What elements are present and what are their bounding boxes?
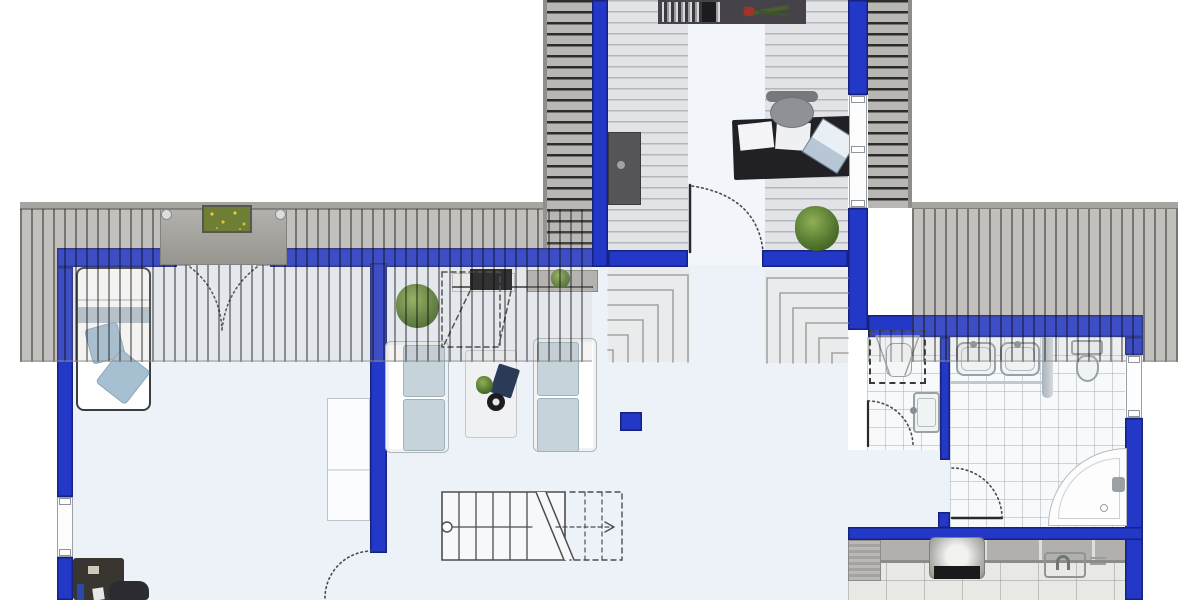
floor-plan-canvas	[0, 0, 1200, 600]
table-bowl	[487, 393, 505, 411]
kitchen-sink-faucet	[1056, 555, 1070, 570]
bedroom-desk-item-beige	[88, 566, 99, 574]
kitchen-drain-line-1	[1090, 557, 1106, 559]
wall-bath-door-nub	[938, 512, 950, 528]
office-plant	[795, 206, 839, 251]
wc-sink-basin	[917, 398, 936, 427]
window-west-handle-bottom	[59, 549, 71, 556]
kitchen-counter	[881, 540, 1125, 562]
bedroom-chair	[109, 581, 149, 600]
roof-overlay-left	[20, 209, 592, 362]
office-slope-left	[608, 0, 688, 258]
chevron-bg-left	[608, 267, 690, 362]
office-chair-seat	[770, 97, 814, 128]
balcony-flowerbox	[202, 205, 252, 233]
roof-overlay-wc	[868, 330, 912, 362]
kitchen-drain-line-2	[1090, 563, 1106, 565]
balcony-post-left	[161, 209, 172, 220]
balcony-post-right	[275, 209, 286, 220]
wardrobe-line	[328, 469, 369, 471]
cabinet-knob	[617, 161, 625, 169]
window-bath	[1126, 355, 1142, 418]
wall-office-south-west	[608, 250, 688, 267]
window-dormer-handle-2	[851, 146, 865, 153]
bedroom-desk-item-white	[92, 587, 105, 600]
roof-overlay-right	[912, 209, 1178, 362]
window-west	[57, 497, 73, 557]
window-bath-handle-2	[1128, 410, 1140, 417]
wall-dormer-right-lower	[848, 208, 868, 330]
wall-west-lower	[57, 557, 73, 600]
wardrobe	[327, 398, 370, 521]
table-plant	[476, 376, 493, 394]
bathtub-drain	[1100, 504, 1108, 512]
sofa-left-cushion-bottom	[403, 399, 445, 451]
vanity-edge	[950, 381, 1043, 384]
wall-office-south-east	[762, 250, 848, 267]
shelf-black-item	[702, 2, 716, 22]
counter-gap-3	[1039, 540, 1042, 560]
window-bath-handle-1	[1128, 356, 1140, 363]
wall-bath-south	[848, 527, 1143, 540]
bedroom-desk-item-blue	[77, 584, 84, 600]
office-cabinet	[608, 132, 641, 205]
kitchen-stove-base	[934, 566, 980, 579]
wall-east-lower	[1125, 418, 1143, 600]
desk-paper-1	[738, 121, 775, 150]
dormer-roof-right	[868, 0, 912, 208]
wall-dormer-left	[592, 0, 608, 267]
wall-dormer-right-upper	[848, 0, 868, 95]
chevron-bg-right	[765, 270, 848, 363]
kitchen-fridge	[848, 540, 881, 581]
bathtub-faucet	[1112, 477, 1125, 492]
floor-landing	[848, 450, 950, 528]
slope-edge-left	[20, 360, 592, 362]
window-dormer-handle-3	[851, 200, 865, 207]
window-west-handle-top	[59, 498, 71, 505]
kitchen-counter-edge	[881, 560, 1125, 563]
sofa-right-cushion-bottom	[537, 398, 579, 452]
chimney-block	[620, 412, 642, 431]
wc-sink-faucet	[910, 407, 917, 414]
window-dormer-handle-1	[851, 96, 865, 103]
